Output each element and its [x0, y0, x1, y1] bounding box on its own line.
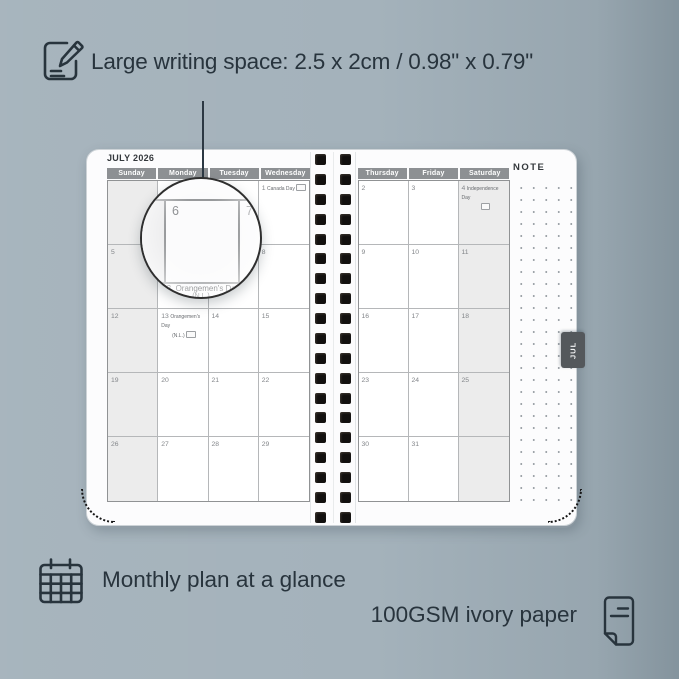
paper-text: 100GSM ivory paper	[371, 602, 577, 628]
day-number: 18	[462, 313, 470, 320]
spiral-hole	[340, 333, 351, 344]
paper-sheet-icon	[599, 595, 639, 652]
weekday-header: Friday	[409, 168, 458, 179]
day-cell: 4Independence Day	[459, 181, 509, 245]
day-number: 25	[462, 377, 470, 384]
spiral-hole	[340, 492, 351, 503]
day-number: 4	[462, 185, 466, 192]
day-cell: 30	[359, 437, 409, 501]
day-cell: 2	[359, 181, 409, 245]
day-number: 15	[262, 313, 270, 320]
spiral-hole	[340, 194, 351, 205]
weekday-header: Thursday	[358, 168, 407, 179]
day-cell: 31	[409, 437, 459, 501]
holiday-flag-icon	[481, 203, 491, 210]
spiral-hole	[340, 373, 351, 384]
spiral-hole	[315, 432, 326, 443]
spiral-hole	[340, 234, 351, 245]
day-number: 23	[362, 377, 370, 384]
holiday-label: Canada Day	[267, 186, 295, 192]
day-cell: 29	[259, 437, 309, 501]
day-number: 16	[362, 313, 370, 320]
day-number: 21	[212, 377, 220, 384]
spiral-binding-left	[315, 154, 326, 523]
spiral-hole	[340, 293, 351, 304]
day-number: 19	[111, 377, 119, 384]
day-number: 10	[412, 249, 420, 256]
day-cell: 12	[108, 309, 158, 373]
day-cell: 20	[158, 373, 208, 437]
spiral-hole	[315, 194, 326, 205]
grid-line	[142, 199, 260, 201]
magnifier-circle: 6 7 13 Orangemen's Day (N.L.)	[140, 177, 262, 299]
page-crease	[355, 152, 356, 523]
day-cell: 21	[209, 373, 259, 437]
day-number: 14	[212, 313, 220, 320]
day-number: 12	[111, 313, 119, 320]
day-cell: 14	[209, 309, 259, 373]
calendar-right-page: ThursdayFridaySaturday 234Independence D…	[358, 168, 510, 502]
spiral-hole	[315, 293, 326, 304]
month-title: JULY 2026	[107, 153, 154, 163]
weekday-header-row: ThursdayFridaySaturday	[358, 168, 510, 179]
spiral-hole	[340, 412, 351, 423]
day-number: 29	[262, 441, 270, 448]
spiral-hole	[340, 512, 351, 523]
day-cell: 8	[259, 245, 309, 309]
day-cell: 9	[359, 245, 409, 309]
spiral-hole	[340, 353, 351, 364]
day-cell: 24	[409, 373, 459, 437]
day-cell: 25	[459, 373, 509, 437]
day-cell: 23	[359, 373, 409, 437]
spiral-hole	[315, 512, 326, 523]
day-cell: 22	[259, 373, 309, 437]
day-number: 27	[161, 441, 169, 448]
day-cell: 26	[108, 437, 158, 501]
caption-holiday: Orangemen's Day	[176, 284, 240, 293]
day-cell: 15	[259, 309, 309, 373]
product-infographic: { "colors": { "background": "#a4b2bb", "…	[0, 0, 679, 679]
spiral-hole	[315, 412, 326, 423]
spiral-hole	[340, 472, 351, 483]
calendar-grid: 234Independence Day910111617182324253031	[358, 180, 510, 502]
day-number: 8	[262, 249, 266, 256]
writing-space-annotation: Large writing space: 2.5 x 2cm / 0.98" x…	[40, 36, 86, 89]
day-number: 1	[262, 185, 266, 192]
spiral-hole	[315, 253, 326, 264]
spiral-hole	[315, 373, 326, 384]
holiday-subline: (N.L.)	[161, 331, 206, 340]
day-cell: 27	[158, 437, 208, 501]
day-cell: 28	[209, 437, 259, 501]
spiral-hole	[315, 154, 326, 165]
day-number: 9	[362, 249, 366, 256]
day-cell: 17	[409, 309, 459, 373]
spiral-hole	[315, 333, 326, 344]
spiral-hole	[315, 174, 326, 185]
day-cell: 3	[409, 181, 459, 245]
day-cell: 19	[108, 373, 158, 437]
weekday-header: Saturday	[460, 168, 509, 179]
spiral-hole	[315, 492, 326, 503]
day-cell: 10	[409, 245, 459, 309]
magnified-holiday-caption: 13 Orangemen's Day	[142, 284, 260, 293]
day-number: 20	[161, 377, 169, 384]
spiral-hole	[340, 452, 351, 463]
day-cell: 18	[459, 309, 509, 373]
spiral-hole	[315, 234, 326, 245]
spiral-hole	[340, 393, 351, 404]
grid-line	[238, 199, 240, 283]
day-number: 2	[362, 185, 366, 192]
spiral-hole	[340, 313, 351, 324]
callout-line	[202, 101, 204, 178]
spiral-hole	[315, 452, 326, 463]
spiral-hole	[315, 353, 326, 364]
day-number: 24	[412, 377, 420, 384]
magnified-day-number: 7	[246, 204, 253, 218]
day-number: 30	[362, 441, 370, 448]
spiral-hole	[340, 432, 351, 443]
spiral-hole	[340, 253, 351, 264]
day-number: 22	[262, 377, 270, 384]
page-crease	[333, 152, 334, 523]
spiral-hole	[315, 393, 326, 404]
caption-day: 13	[162, 284, 171, 293]
corner-stitch-right	[548, 489, 582, 523]
grid-line	[164, 199, 166, 283]
day-cell: 1Canada Day	[259, 181, 309, 245]
day-cell	[459, 437, 509, 501]
day-number: 5	[111, 249, 115, 256]
spiral-hole	[340, 174, 351, 185]
holiday-flag-icon	[186, 331, 196, 338]
writing-space-text: Large writing space: 2.5 x 2cm / 0.98" x…	[91, 49, 651, 75]
holiday-label: Independence Day	[462, 186, 499, 202]
spiral-hole	[315, 313, 326, 324]
day-number: 11	[462, 249, 469, 256]
spiral-hole	[315, 273, 326, 284]
day-number: 28	[212, 441, 220, 448]
spiral-hole	[315, 472, 326, 483]
magnified-day-number: 6	[172, 204, 179, 218]
day-cell: 13Orangemen's Day(N.L.)	[158, 309, 208, 373]
day-number: 17	[412, 313, 420, 320]
holiday-subline	[462, 203, 508, 212]
pencil-note-icon	[40, 36, 86, 89]
day-number: 13	[161, 313, 169, 320]
day-cell: 11	[459, 245, 509, 309]
day-cell: 16	[359, 309, 409, 373]
holiday-flag-icon	[296, 184, 306, 191]
day-number: 31	[412, 441, 420, 448]
calendar-grid-icon	[36, 593, 86, 610]
page-crease	[310, 152, 311, 523]
spiral-hole	[340, 154, 351, 165]
spiral-binding-right	[340, 154, 351, 523]
day-number: 26	[111, 441, 119, 448]
spiral-hole	[315, 214, 326, 225]
weekday-header: Wednesday	[261, 168, 310, 179]
monthly-plan-annotation: Monthly plan at a glance	[36, 556, 86, 611]
weekday-header: Sunday	[107, 168, 156, 179]
holiday-region: (N.L.)	[172, 333, 185, 339]
spiral-hole	[340, 273, 351, 284]
spiral-hole	[340, 214, 351, 225]
day-number: 3	[412, 185, 416, 192]
monthly-plan-text: Monthly plan at a glance	[102, 567, 532, 593]
month-index-tab: JUL	[561, 332, 585, 368]
note-label: NOTE	[513, 162, 545, 173]
weekday-header: Tuesday	[210, 168, 259, 179]
